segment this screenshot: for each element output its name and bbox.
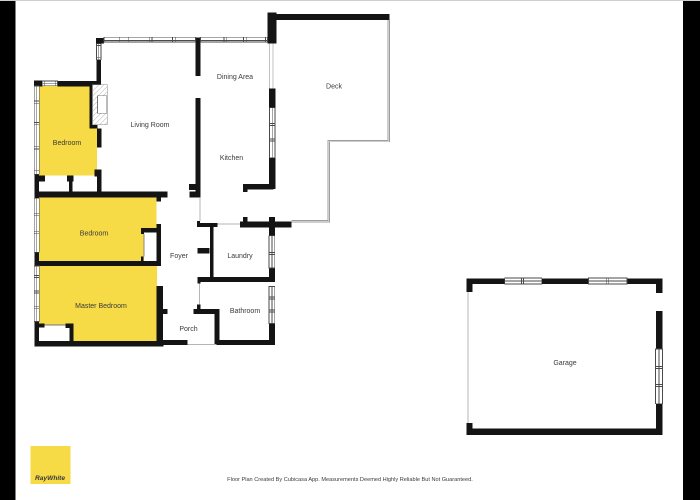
svg-text:Living Room: Living Room bbox=[131, 122, 170, 129]
svg-text:Deck: Deck bbox=[326, 84, 342, 91]
svg-text:Master Bedroom: Master Bedroom bbox=[75, 303, 127, 310]
svg-text:RayWhite: RayWhite bbox=[35, 475, 65, 482]
svg-text:Porch: Porch bbox=[179, 326, 197, 333]
svg-text:Garage: Garage bbox=[553, 360, 576, 367]
svg-text:Laundry: Laundry bbox=[227, 253, 253, 260]
svg-text:Kitchen: Kitchen bbox=[220, 155, 243, 162]
svg-text:Foyer: Foyer bbox=[170, 253, 189, 260]
svg-text:Dining Area: Dining Area bbox=[217, 74, 253, 81]
svg-text:Bathroom: Bathroom bbox=[230, 308, 261, 315]
svg-text:Floor Plan Created By Cubicasa: Floor Plan Created By Cubicasa App. Meas… bbox=[227, 477, 473, 483]
svg-text:Bedroom: Bedroom bbox=[53, 140, 82, 147]
svg-text:Bedroom: Bedroom bbox=[80, 231, 109, 238]
